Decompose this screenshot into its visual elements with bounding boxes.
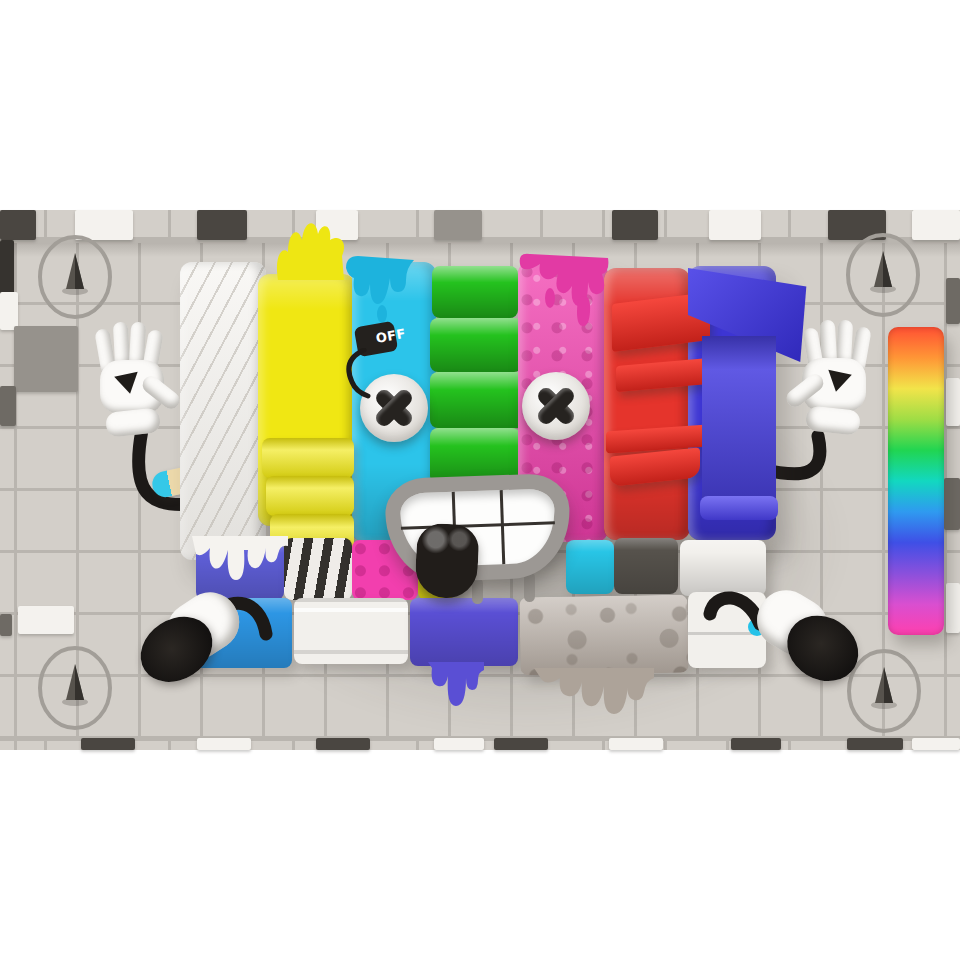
darkgray-block bbox=[614, 538, 678, 594]
accent-tile bbox=[81, 738, 135, 750]
accent-tile bbox=[912, 738, 960, 750]
sponge-drip bbox=[534, 668, 654, 724]
rainbow-calibration-strip bbox=[888, 327, 944, 635]
accent-tile bbox=[316, 738, 370, 750]
tooth-line bbox=[500, 490, 506, 564]
blue-ribbon-front bbox=[702, 336, 776, 504]
compass-icon bbox=[35, 642, 115, 734]
accent-tile bbox=[0, 386, 16, 426]
green-slab bbox=[430, 372, 526, 428]
right-hand-glove bbox=[794, 320, 868, 438]
striped-block bbox=[284, 538, 352, 600]
accent-tile bbox=[609, 738, 663, 750]
compass-marker bbox=[843, 229, 923, 321]
green-slab bbox=[432, 266, 518, 318]
cyan-block bbox=[566, 540, 614, 594]
cuff bbox=[805, 405, 861, 436]
tooth-line bbox=[401, 521, 555, 529]
pink-drip bbox=[514, 250, 614, 342]
accent-tile bbox=[946, 378, 960, 426]
white-eraser-block bbox=[294, 598, 408, 664]
purple-block bbox=[410, 598, 518, 666]
accent-tile bbox=[0, 210, 36, 240]
accent-tile bbox=[731, 738, 781, 750]
accent-tile bbox=[0, 292, 18, 330]
compass-icon bbox=[843, 229, 923, 321]
left-hand-glove bbox=[98, 322, 172, 440]
accent-tile bbox=[612, 210, 658, 240]
accent-tile bbox=[494, 738, 548, 750]
yellow-fold bbox=[262, 438, 354, 478]
off-tag-label: OFF bbox=[373, 319, 408, 354]
white-quilted-bar bbox=[180, 262, 266, 560]
cuff bbox=[105, 407, 161, 438]
cyan-drip bbox=[344, 254, 418, 324]
accent-tile bbox=[434, 738, 484, 750]
accent-tile bbox=[197, 210, 247, 240]
green-slab bbox=[430, 318, 522, 372]
yellow-fold bbox=[266, 476, 354, 516]
accent-tile bbox=[944, 478, 960, 530]
right-eye-screw bbox=[522, 372, 590, 440]
accent-tile bbox=[434, 210, 482, 240]
mouth-grin bbox=[384, 473, 572, 583]
sponge-block bbox=[519, 595, 688, 676]
accent-tile bbox=[197, 738, 251, 750]
accent-tile bbox=[847, 738, 903, 750]
blue-ribbon-curl bbox=[700, 496, 778, 520]
accent-tile bbox=[14, 326, 78, 392]
purple-drip bbox=[428, 662, 484, 708]
off-tag-stem bbox=[340, 348, 374, 404]
accent-tile bbox=[0, 614, 12, 636]
white-block bbox=[680, 540, 766, 596]
compass-marker bbox=[35, 642, 115, 734]
accent-tile bbox=[946, 278, 960, 324]
compass-icon bbox=[35, 231, 115, 323]
accent-tile bbox=[18, 606, 74, 634]
accent-tile bbox=[709, 210, 761, 240]
artwork-canvas: OFF bbox=[0, 0, 960, 960]
accent-tile bbox=[946, 583, 960, 633]
compass-marker bbox=[35, 231, 115, 323]
